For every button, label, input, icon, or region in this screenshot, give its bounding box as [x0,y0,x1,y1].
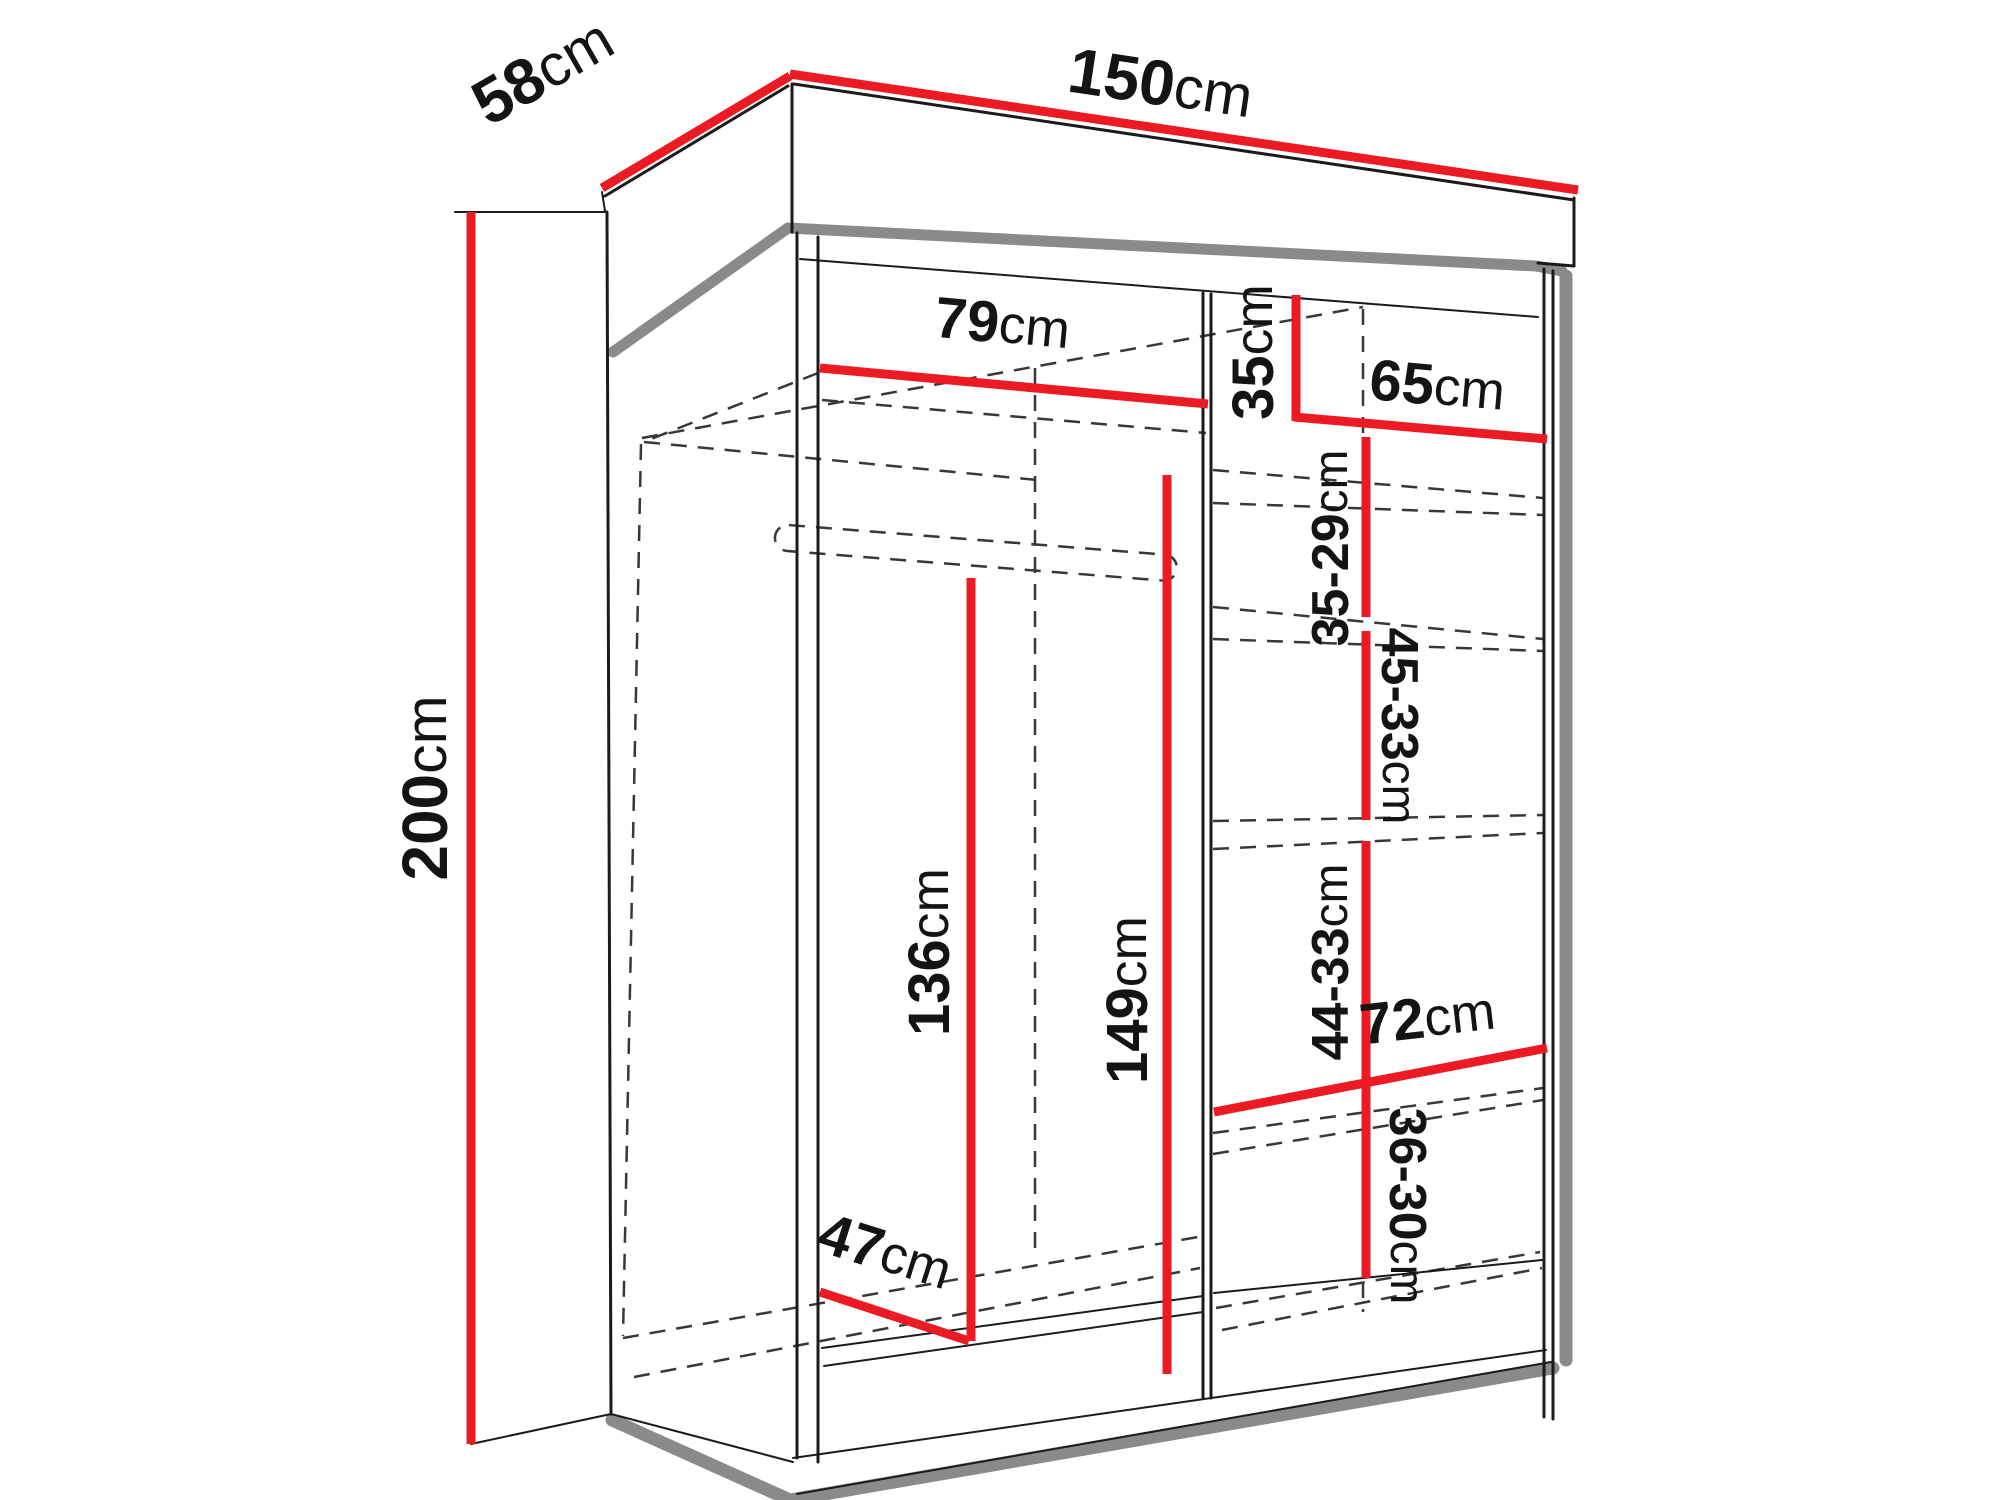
dim-label-top-right: 35cm [1221,284,1286,420]
shelf1-back-dashed [1213,503,1543,515]
dim-label-hanging-space: 136cm [897,868,962,1036]
dim-label-upper-shelf: 79cm [932,285,1073,362]
crown-top-left-edge [605,86,788,196]
dim-label-depth: 58cm [460,2,626,139]
dim-line-upper-shelf-79 [820,368,1208,404]
top-shelf-left-edge-dashed [646,373,818,441]
dimension-labels: 58cm 150cm 200cm 79cm 35cm 65cm 35-29cm … [389,2,1508,1304]
top-shelf-underside-dashed [822,400,1206,433]
wardrobe-dimension-diagram: 58cm 150cm 200cm 79cm 35cm 65cm 35-29cm … [0,0,2000,1500]
bottom-shadow [612,1368,1553,1500]
shelf4-back-dashed [1213,1100,1543,1154]
floor-back-edge-right-dashed [1216,1252,1540,1308]
dim-label-upper-right-gap: 35-29cm [1302,450,1360,647]
crown-underside-shadow [613,228,1562,352]
dim-label-lower-right-gap: 44-33cm [1302,864,1360,1061]
dim-line-bottom-shelf-72 [1214,1048,1547,1112]
dim-label-left-column: 149cm [1095,916,1160,1084]
hanging-rod-dashed [774,524,1178,582]
back-left-vertical-edge [607,212,611,1414]
dim-line-floor-47 [820,1292,969,1341]
dim-label-height: 200cm [389,695,461,880]
dim-line-right-shelf-65 [1294,417,1547,439]
dim-label-bottom-right-gap: 36-30cm [1378,1108,1436,1305]
top-shelf-back-edge-dashed [644,442,1037,480]
shelf3-back-dashed [1213,833,1543,849]
dim-line-depth-58 [602,76,790,188]
dim-label-floor-depth: 47cm [811,1201,960,1304]
diagram-canvas: 58cm 150cm 200cm 79cm 35cm 65cm 35-29cm … [0,0,2000,1500]
dim-label-mid-right-gap: 45-33cm [1370,628,1428,825]
panel-shadows [612,228,1566,1500]
height-tick-bottom [471,1414,611,1444]
dim-label-bottom-shelf: 72cm [1356,978,1498,1058]
ceiling-front-edge [800,259,1538,317]
back-left-corner-dashed [623,444,641,1336]
shelf1-front-dashed [1213,470,1543,498]
base-bottom-edge [797,1362,1551,1494]
dim-label-right-shelf: 65cm [1367,348,1508,425]
